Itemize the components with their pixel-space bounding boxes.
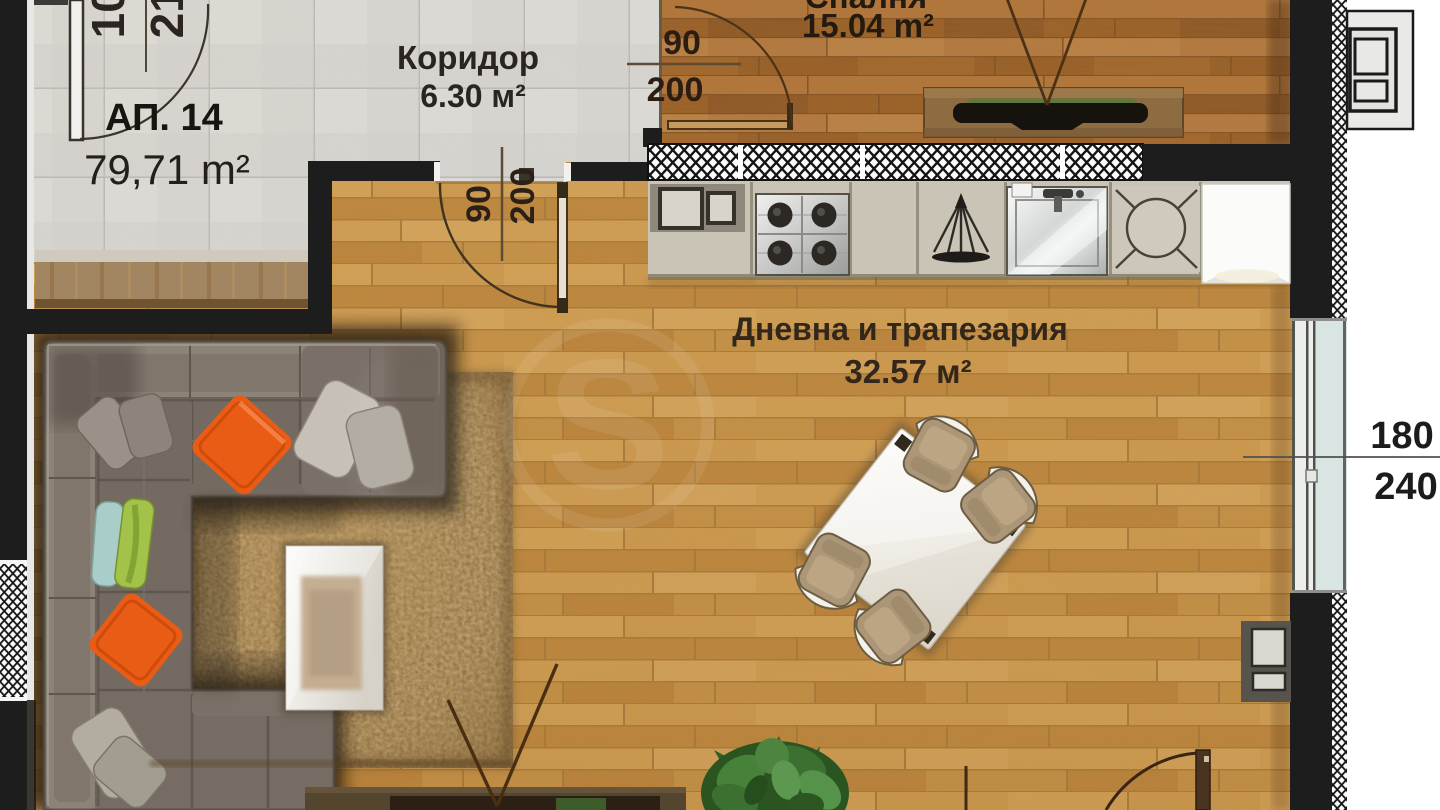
svg-text:210: 210 <box>141 0 193 38</box>
svg-text:200: 200 <box>504 168 542 225</box>
svg-text:32.57 м²: 32.57 м² <box>844 353 971 390</box>
svg-text:180: 180 <box>1370 415 1433 457</box>
svg-text:79,71 m²: 79,71 m² <box>84 146 250 193</box>
svg-text:240: 240 <box>1374 466 1437 508</box>
svg-text:200: 200 <box>647 71 704 109</box>
svg-text:90: 90 <box>663 24 701 62</box>
svg-text:90: 90 <box>460 185 498 223</box>
svg-text:Коридор: Коридор <box>397 39 539 76</box>
svg-text:6.30 м²: 6.30 м² <box>420 78 526 114</box>
svg-text:100: 100 <box>82 0 134 38</box>
svg-text:АП. 14: АП. 14 <box>105 97 223 139</box>
svg-text:Дневна и трапезария: Дневна и трапезария <box>732 311 1067 347</box>
svg-text:15.04 m²: 15.04 m² <box>802 7 934 44</box>
svg-text:S: S <box>546 322 669 528</box>
